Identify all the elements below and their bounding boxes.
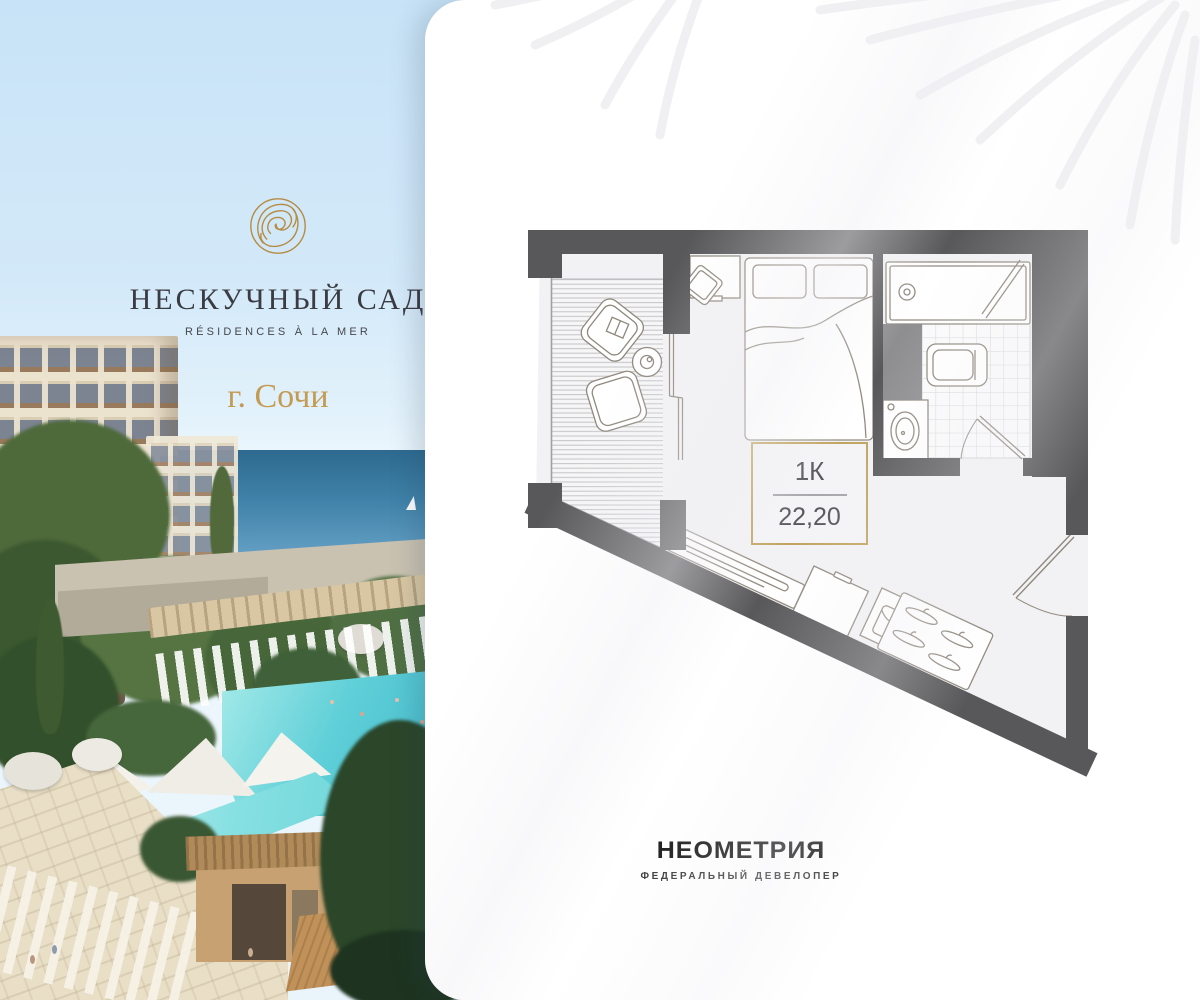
cypress-tree: [36, 598, 64, 734]
bathtub: [886, 260, 1030, 324]
swimmer: [330, 700, 334, 704]
swimmer: [395, 698, 399, 702]
double-bed: [745, 258, 873, 440]
unit-type-label: 1К: [795, 456, 825, 487]
resort-photo: НЕСКУЧНЫЙ САД RÉSIDENCES À LA MER г. Соч…: [0, 0, 470, 1000]
toilet: [927, 344, 987, 386]
divider: [773, 494, 847, 496]
swimmer: [420, 720, 424, 724]
developer-logo: НЕОМЕТРИЯ ФЕДЕРАЛЬНЫЙ ДЕВЕЛОПЕР: [621, 836, 861, 882]
unit-info-box: 1К 22,20: [751, 442, 868, 545]
developer-name: НЕОМЕТРИЯ: [621, 836, 861, 864]
person: [52, 945, 57, 954]
pillow: [753, 265, 806, 298]
brand-block: НЕСКУЧНЫЙ САД RÉSIDENCES À LA MER г. Соч…: [100, 196, 456, 416]
person: [30, 955, 35, 964]
page: НЕСКУЧНЫЙ САД RÉSIDENCES À LA MER г. Соч…: [0, 0, 1200, 1000]
washbasin: [883, 400, 928, 460]
brand-logo-spiral-icon: [248, 196, 308, 256]
developer-descriptor: ФЕДЕРАЛЬНЫЙ ДЕВЕЛОПЕР: [621, 871, 861, 882]
unit-area-label: 22,20: [778, 503, 841, 532]
pavilion-opening: [232, 884, 286, 960]
umbrella: [4, 752, 62, 790]
pillow: [814, 265, 867, 298]
umbrella: [72, 738, 122, 771]
brand-city: г. Сочи: [100, 378, 456, 416]
swimmer: [360, 712, 364, 716]
person: [248, 948, 253, 957]
coffee-table: [633, 348, 662, 377]
duct-shaft: [883, 324, 922, 400]
brand-tagline: RÉSIDENCES À LA MER: [100, 326, 456, 338]
brand-title: НЕСКУЧНЫЙ САД: [100, 283, 456, 317]
plan-card: 1К 22,20 НЕОМЕТРИЯ ФЕДЕРАЛЬНЫЙ ДЕВЕЛОПЕР: [425, 0, 1200, 1000]
